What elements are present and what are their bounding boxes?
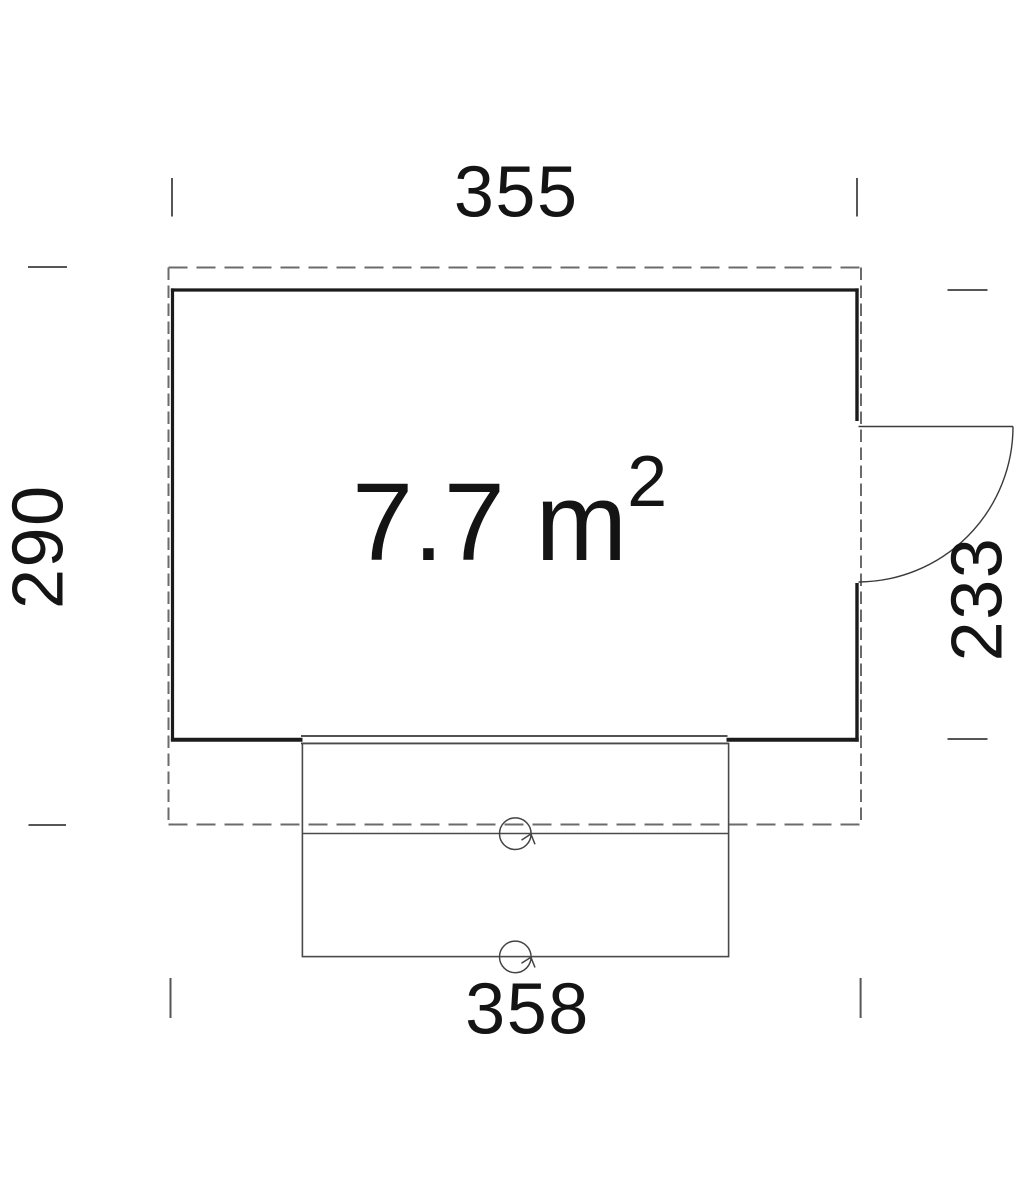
svg-text:233: 233 bbox=[937, 537, 1017, 662]
svg-text:355: 355 bbox=[454, 152, 579, 232]
svg-text:290: 290 bbox=[0, 484, 79, 609]
svg-text:7.7 m2: 7.7 m2 bbox=[352, 442, 667, 584]
svg-text:358: 358 bbox=[465, 969, 590, 1049]
